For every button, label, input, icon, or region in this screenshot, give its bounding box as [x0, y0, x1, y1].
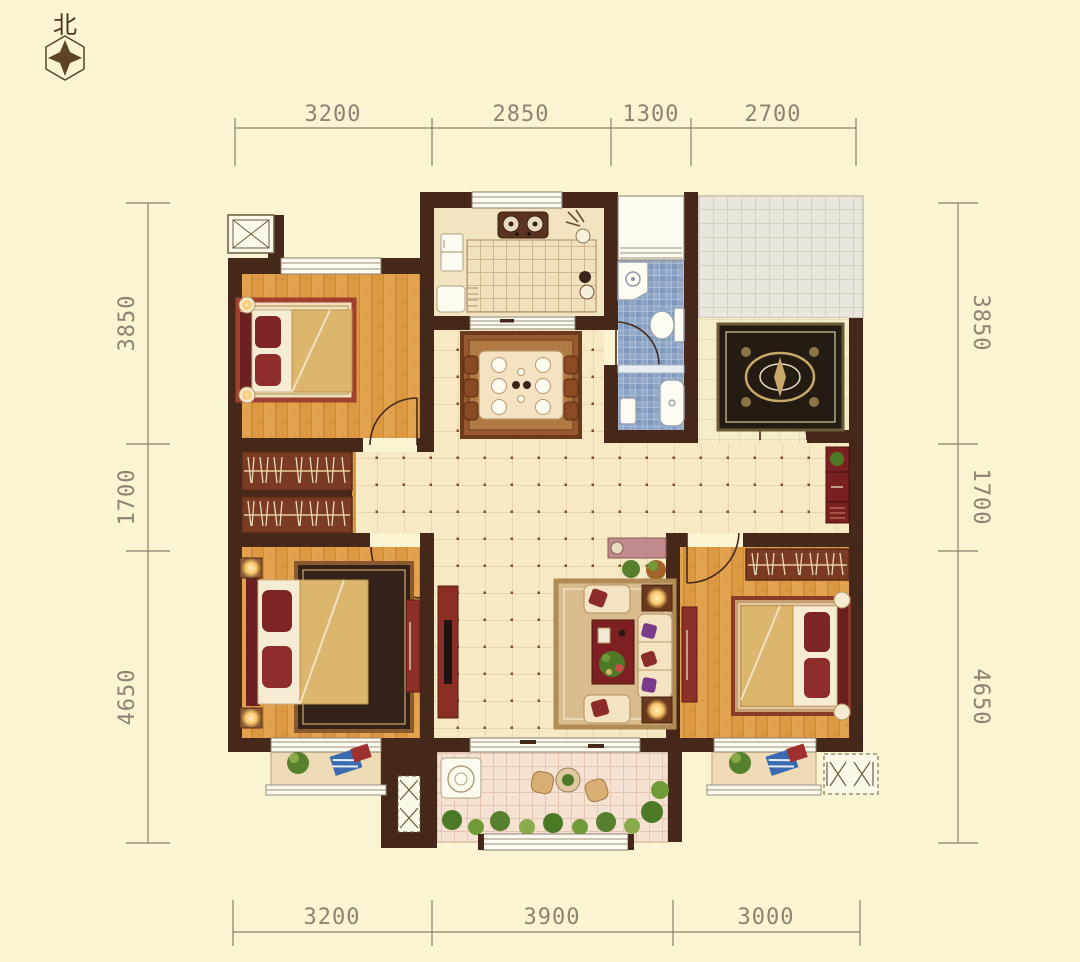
plant-icon — [624, 818, 640, 834]
plant-icon — [519, 819, 535, 835]
ac-platform-left — [398, 776, 420, 832]
wall-bottom-3 — [640, 738, 714, 752]
dim-left-2: 1700 — [115, 469, 140, 526]
pillow — [262, 590, 292, 632]
plate-icon — [536, 379, 551, 394]
balcony-railing — [483, 834, 628, 850]
wall-bottom-2 — [437, 738, 470, 752]
plant-icon — [830, 452, 844, 466]
bed-headboard — [836, 604, 848, 708]
public-corridor-floor — [698, 196, 863, 318]
pillow — [804, 658, 830, 698]
lamp-glow — [241, 558, 261, 578]
wall-bathroom-bottom — [604, 430, 698, 443]
dim-top-1: 3200 — [305, 102, 362, 127]
plant-icon — [622, 560, 640, 578]
kitchen-floor-grid — [467, 240, 596, 312]
pot-icon — [580, 285, 594, 299]
bed-duvet — [741, 606, 793, 706]
tv-icon — [444, 620, 452, 684]
plate-icon — [492, 358, 507, 373]
dim-left-1: 3850 — [115, 295, 140, 352]
wall-kitchen-bottom-right — [575, 316, 618, 330]
wall-bottom-1 — [228, 738, 271, 752]
wall-bathroom-left-upper — [604, 192, 618, 322]
kettle-icon — [579, 271, 591, 283]
corridor-floor — [434, 443, 849, 533]
bed-duvet — [292, 310, 352, 392]
dim-right-3: 4650 — [968, 669, 993, 726]
lamp-glow — [241, 299, 253, 311]
toilet-icon — [650, 311, 674, 339]
dimension-right: 3850 1700 4650 — [938, 203, 993, 843]
pillow — [804, 612, 830, 652]
chair-icon — [464, 356, 478, 374]
bedroom1-window — [281, 258, 381, 274]
north-indicator: 北 — [46, 11, 84, 80]
wall-bedroom2-top — [228, 533, 370, 547]
chair-icon — [464, 402, 478, 420]
chair-icon — [564, 402, 578, 420]
plant-icon — [490, 811, 510, 831]
wall-bottom-4 — [816, 738, 863, 752]
plant-icon — [562, 774, 574, 786]
dimension-bottom: 3200 3900 3000 — [233, 900, 860, 946]
lamp-glow — [646, 699, 668, 721]
dim-bottom-2: 3900 — [524, 905, 581, 930]
chair-icon — [564, 356, 578, 374]
kitchen-window — [472, 192, 562, 208]
wall-bedroom1-kitchen — [420, 192, 434, 452]
bedroom-top-left — [238, 297, 354, 403]
pillow — [255, 316, 281, 348]
plant-icon — [596, 812, 616, 832]
pillow — [641, 677, 657, 693]
closet-corridor-floor — [356, 452, 434, 533]
chair-icon — [464, 379, 478, 397]
plant-icon — [442, 810, 462, 830]
dresser — [406, 600, 420, 692]
living-balcony-slider — [470, 738, 640, 752]
nightstand — [834, 704, 850, 720]
dim-left-3: 4650 — [115, 669, 140, 726]
bathroom-recess — [618, 196, 684, 260]
dim-top-3: 1300 — [623, 102, 680, 127]
plant-icon — [468, 819, 484, 835]
dim-bottom-1: 3200 — [304, 905, 361, 930]
floor-plan-page: 北 3200 2850 1300 2700 3200 3900 3000 385… — [0, 0, 1080, 962]
compass-star-icon — [48, 40, 82, 76]
pillow — [255, 354, 281, 386]
plate-icon — [492, 400, 507, 415]
bed-duvet — [300, 580, 368, 704]
ac-platform-right — [824, 754, 878, 794]
wall-bedroom1-bottom-stub — [417, 438, 434, 452]
dim-bottom-3: 3000 — [738, 905, 795, 930]
plant-icon — [651, 781, 669, 799]
lamp-glow — [241, 708, 261, 728]
chair-icon — [564, 379, 578, 397]
dining-area — [462, 333, 580, 437]
dim-right-2: 1700 — [968, 469, 993, 526]
nightstand — [834, 592, 850, 608]
bed-headboard — [240, 312, 252, 392]
dimension-top: 3200 2850 1300 2700 — [235, 102, 856, 166]
wall-bedroom3-top — [743, 533, 863, 547]
plate-icon — [536, 400, 551, 415]
plant-icon — [572, 819, 588, 835]
dresser — [682, 607, 697, 702]
plate-icon — [536, 358, 551, 373]
north-label: 北 — [53, 11, 77, 39]
lamp-glow — [646, 587, 668, 609]
pillow — [262, 646, 292, 688]
kitchen-sliding-door — [470, 317, 575, 329]
wall-balcony-right — [668, 752, 682, 842]
plate-icon — [492, 379, 507, 394]
dim-top-4: 2700 — [745, 102, 802, 127]
table-decor — [598, 628, 610, 643]
flower-bouquet-icon — [599, 651, 625, 677]
wall-foyer-bottom-stub — [807, 430, 849, 443]
plant-icon — [543, 813, 563, 833]
elevator — [228, 215, 274, 253]
wall-bathroom-right — [684, 192, 698, 443]
toilet-tank — [674, 308, 684, 342]
wall-bedroom1-bottom — [228, 438, 363, 452]
dim-top-2: 2850 — [493, 102, 550, 127]
dim-right-1: 3850 — [968, 295, 993, 352]
shower-partition — [618, 365, 684, 373]
shower-tray-icon — [660, 380, 684, 426]
wall-kitchen-bottom-left — [434, 316, 470, 330]
plate-icon — [576, 229, 590, 243]
kitchen-sink-icon — [437, 286, 465, 312]
plant-icon — [641, 801, 663, 823]
dimension-left: 3850 1700 4650 — [115, 203, 170, 843]
bath-cabinet — [620, 398, 636, 424]
floor-plan-canvas: 北 3200 2850 1300 2700 3200 3900 3000 385… — [0, 0, 1080, 962]
lamp-glow — [241, 389, 253, 401]
